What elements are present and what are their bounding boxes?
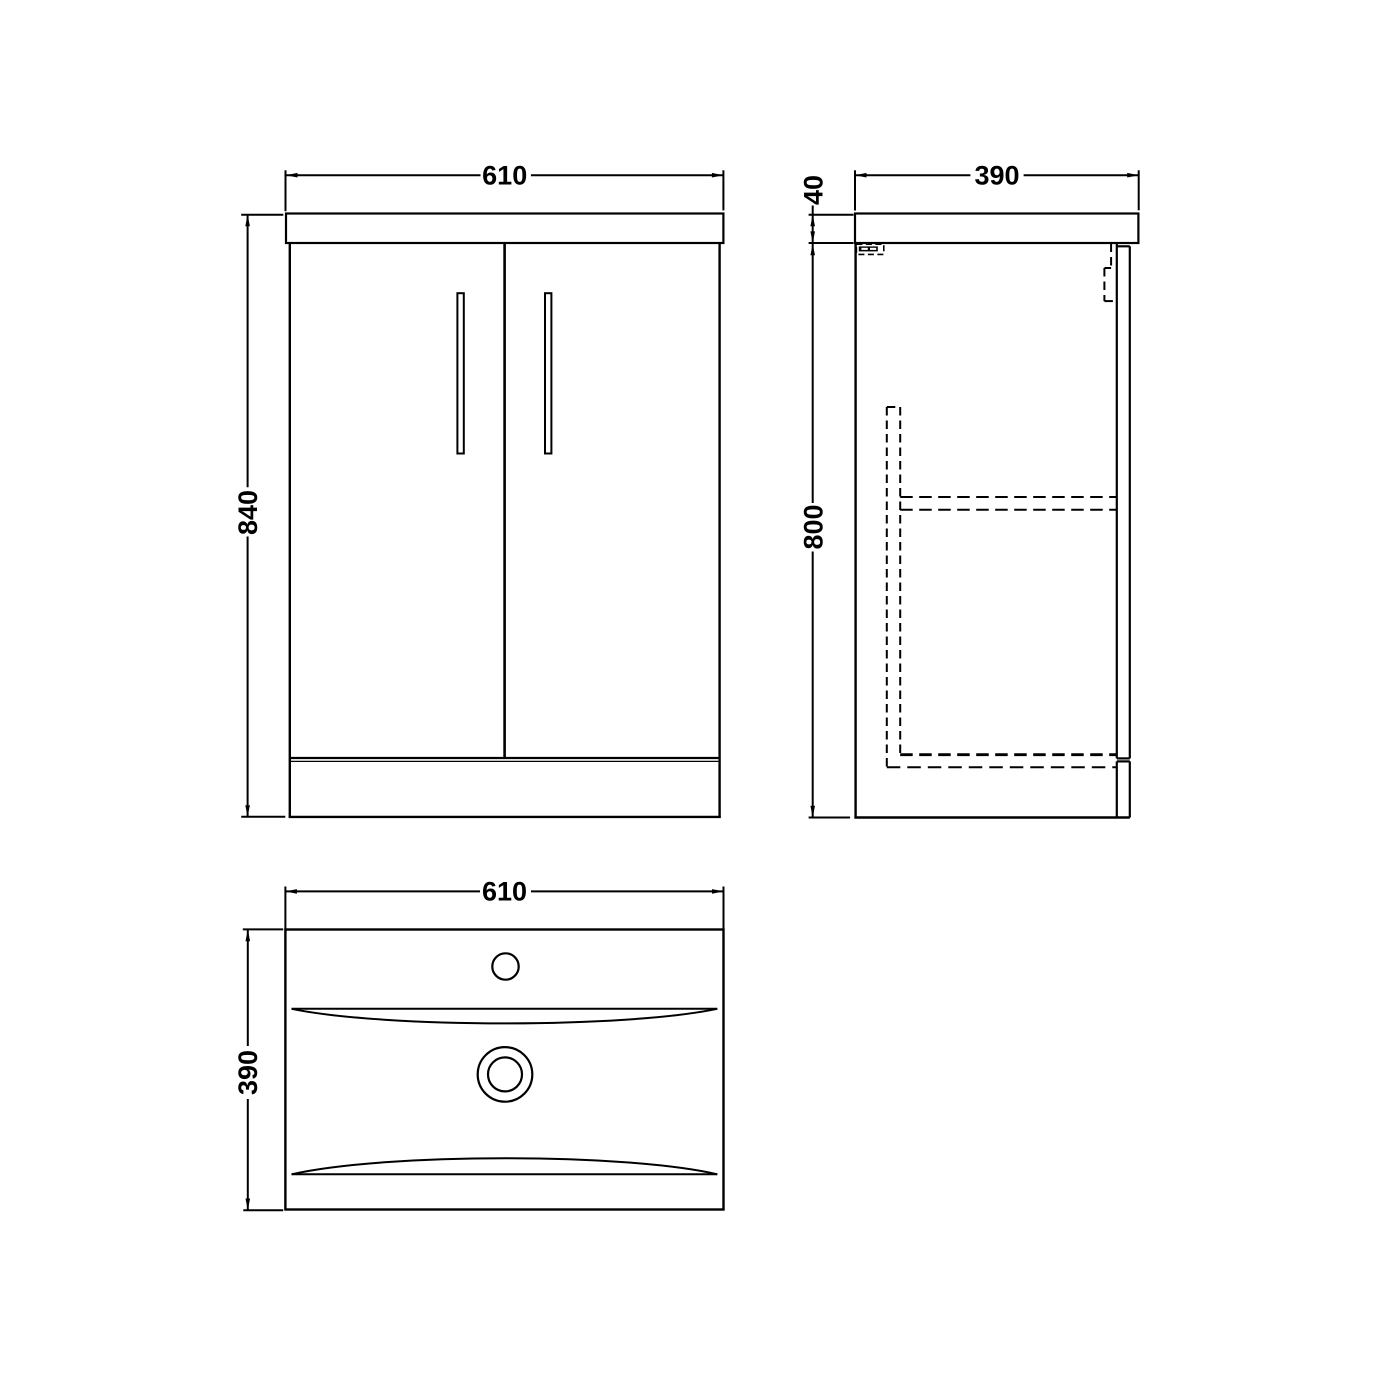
svg-text:610: 610 [482,877,527,907]
svg-text:390: 390 [974,160,1019,190]
svg-text:800: 800 [798,504,828,549]
svg-text:40: 40 [798,175,828,205]
svg-text:390: 390 [233,1050,263,1095]
svg-text:840: 840 [233,490,263,535]
svg-text:610: 610 [482,160,527,190]
